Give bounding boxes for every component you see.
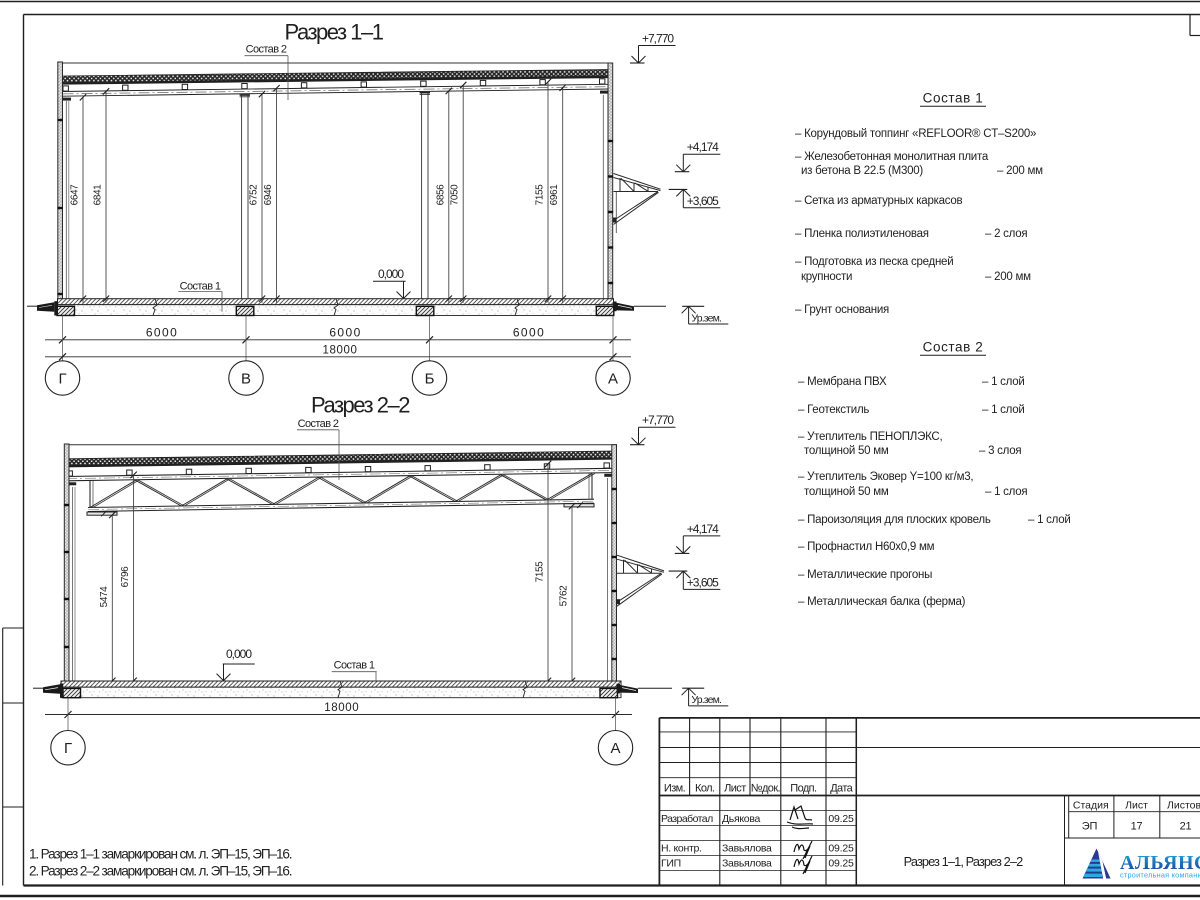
svg-text:2. Разрез 2–2 замаркирован см.: 2. Разрез 2–2 замаркирован см. л. ЭП–15,… (29, 864, 292, 879)
svg-text:А: А (608, 370, 618, 387)
svg-text:– Корундовый топпинг «REFLOOR®: – Корундовый топпинг «REFLOOR® CT–S200» (795, 128, 1036, 140)
svg-text:– Металлические прогоны: – Металлические прогоны (798, 569, 932, 581)
svg-text:09.25: 09.25 (828, 858, 854, 870)
svg-text:Г: Г (58, 370, 66, 387)
svg-text:Листов: Листов (1167, 799, 1200, 811)
svg-text:Разрез 2–2: Разрез 2–2 (311, 393, 410, 418)
svg-text:6000: 6000 (146, 325, 178, 339)
svg-text:Н. контр.: Н. контр. (661, 843, 702, 855)
svg-text:– Пароизоляция для плоских кро: – Пароизоляция для плоских кровель (798, 514, 991, 526)
svg-text:Разрез 1–1: Разрез 1–1 (285, 20, 384, 45)
svg-text:Изм.: Изм. (664, 782, 686, 794)
svg-text:– Мембрана ПВХ: – Мембрана ПВХ (798, 376, 887, 388)
svg-text:– Профнастил Н60х0,9 мм: – Профнастил Н60х0,9 мм (798, 541, 935, 553)
svg-text:1. Разрез 1–1 замаркирован см.: 1. Разрез 1–1 замаркирован см. л. ЭП–15,… (29, 847, 292, 862)
svg-text:Состав 1: Состав 1 (923, 91, 984, 106)
svg-text:толщиной 50 мм: толщиной 50 мм (804, 486, 889, 498)
svg-text:Разрез 1–1, Разрез 2–2: Разрез 1–1, Разрез 2–2 (904, 854, 1023, 869)
svg-text:– Геотекстиль: – Геотекстиль (798, 404, 869, 416)
svg-text:– Утеплитель Эковер Y=100 кг/м: – Утеплитель Эковер Y=100 кг/м3, (798, 471, 973, 483)
svg-text:6647: 6647 (70, 184, 81, 205)
svg-text:Состав 1: Состав 1 (180, 280, 221, 292)
svg-text:ГИП: ГИП (661, 858, 681, 870)
svg-text:Ур.зем.: Ур.зем. (691, 312, 721, 324)
svg-text:Лист: Лист (1125, 799, 1148, 811)
svg-text:Стадия: Стадия (1073, 799, 1109, 811)
svg-text:– 1 слой: – 1 слой (982, 376, 1025, 388)
svg-text:+4,174: +4,174 (687, 140, 719, 154)
svg-text:В: В (241, 370, 251, 387)
svg-text:6841: 6841 (93, 184, 104, 205)
svg-text:+3,605: +3,605 (687, 194, 719, 208)
svg-text:21: 21 (1180, 821, 1192, 833)
svg-text:Дьякова: Дьякова (722, 813, 760, 825)
svg-text:Состав 2: Состав 2 (246, 44, 287, 56)
svg-text:+3,605: +3,605 (687, 576, 719, 590)
svg-text:18000: 18000 (324, 702, 359, 714)
svg-text:Дата: Дата (830, 782, 853, 794)
svg-text:7155: 7155 (535, 184, 546, 205)
svg-text:– Сетка из арматурных каркасов: – Сетка из арматурных каркасов (795, 195, 963, 207)
svg-text:– 200 мм: – 200 мм (985, 271, 1031, 283)
svg-text:Лист: Лист (724, 782, 746, 794)
svg-text:из бетона В 22.5 (М300): из бетона В 22.5 (М300) (801, 165, 923, 177)
svg-text:– 1 слой: – 1 слой (982, 404, 1025, 416)
svg-text:– 3 слоя: – 3 слоя (979, 445, 1021, 457)
svg-text:Состав 2: Состав 2 (298, 418, 339, 430)
svg-text:17: 17 (1131, 821, 1143, 833)
svg-text:№док.: №док. (751, 782, 781, 794)
svg-text:0,000: 0,000 (378, 267, 404, 281)
svg-text:+7,770: +7,770 (642, 413, 674, 427)
svg-text:+4,174: +4,174 (687, 522, 719, 536)
svg-text:строительная компания: строительная компания (1120, 871, 1200, 880)
svg-text:толщиной 50 мм: толщиной 50 мм (804, 445, 889, 457)
svg-text:– 200 мм: – 200 мм (997, 165, 1043, 177)
svg-text:– 2 слоя: – 2 слоя (985, 228, 1027, 240)
svg-text:5762: 5762 (559, 585, 570, 606)
svg-text:6961: 6961 (549, 184, 560, 205)
svg-text:– Утеплитель ПЕНОПЛЭКС,: – Утеплитель ПЕНОПЛЭКС, (798, 431, 942, 443)
svg-text:7155: 7155 (535, 561, 546, 582)
svg-text:Подп.: Подп. (790, 782, 817, 794)
svg-text:– 1 слой: – 1 слой (1028, 514, 1071, 526)
svg-text:– Подготовка из песка средней: – Подготовка из песка средней (795, 256, 953, 268)
svg-text:0,000: 0,000 (226, 647, 252, 661)
svg-text:– 1 слоя: – 1 слоя (985, 486, 1027, 498)
svg-text:крупности: крупности (801, 271, 852, 283)
svg-text:– Грунт основания: – Грунт основания (795, 304, 889, 316)
svg-text:– Металлическая балка (ферма): – Металлическая балка (ферма) (798, 596, 966, 608)
svg-text:Состав 1: Состав 1 (334, 660, 375, 672)
svg-text:6946: 6946 (263, 184, 274, 205)
svg-text:+7,770: +7,770 (642, 32, 674, 46)
svg-text:Разработал: Разработал (661, 813, 713, 825)
svg-text:А: А (610, 740, 620, 757)
svg-text:18000: 18000 (323, 344, 358, 356)
svg-text:Завьялова: Завьялова (722, 858, 772, 870)
svg-text:6856: 6856 (435, 184, 446, 205)
svg-text:Ур.зем.: Ур.зем. (691, 694, 721, 706)
svg-text:ЭП: ЭП (1082, 821, 1098, 833)
svg-text:Кол.: Кол. (695, 782, 715, 794)
svg-text:Б: Б (425, 370, 435, 387)
svg-text:09.25: 09.25 (828, 843, 854, 855)
svg-text:Завьялова: Завьялова (722, 843, 772, 855)
svg-text:7050: 7050 (450, 184, 461, 205)
svg-text:Г: Г (64, 740, 72, 757)
svg-text:6752: 6752 (249, 184, 260, 205)
svg-text:– Пленка полиэтиленовая: – Пленка полиэтиленовая (795, 228, 929, 240)
svg-text:– Железобетонная монолитная п: – Железобетонная монолитная плита (795, 151, 989, 163)
svg-text:5474: 5474 (99, 586, 110, 607)
svg-text:6000: 6000 (513, 325, 545, 339)
svg-text:Состав 2: Состав 2 (923, 340, 984, 355)
svg-text:09.25: 09.25 (828, 813, 854, 825)
svg-text:6796: 6796 (120, 566, 131, 587)
svg-text:6000: 6000 (329, 325, 361, 339)
